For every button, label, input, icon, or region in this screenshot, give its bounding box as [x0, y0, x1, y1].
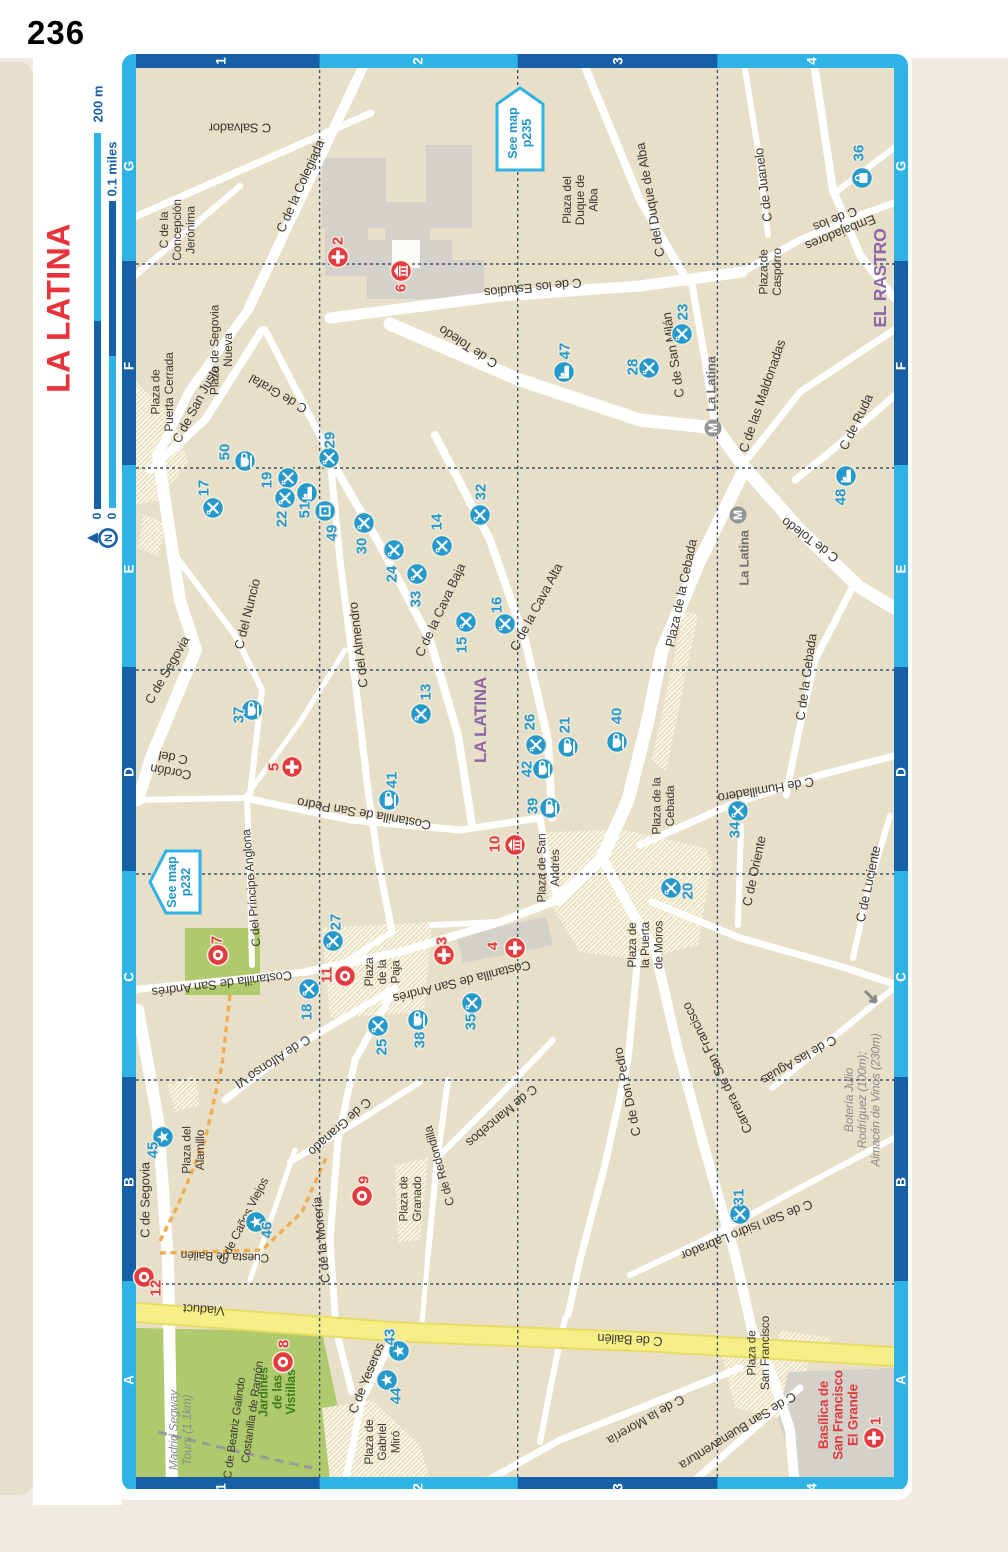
svg-text:45: 45 [145, 1142, 162, 1159]
svg-text:14: 14 [429, 513, 446, 530]
svg-text:Plaza dela Puertade Moros: Plaza dela Puertade Moros [625, 921, 665, 970]
svg-text:29: 29 [322, 432, 339, 449]
svg-text:27: 27 [328, 914, 345, 931]
svg-text:11: 11 [319, 967, 336, 983]
svg-text:2: 2 [330, 237, 347, 245]
svg-text:32: 32 [473, 484, 490, 501]
svg-text:34: 34 [727, 821, 744, 838]
svg-text:42: 42 [519, 761, 536, 778]
svg-text:28: 28 [625, 359, 642, 376]
svg-text:6: 6 [393, 284, 410, 292]
svg-text:37: 37 [231, 707, 248, 724]
svg-text:13: 13 [418, 684, 435, 701]
svg-text:C de Segovia: C de Segovia [138, 1161, 153, 1238]
svg-text:20: 20 [680, 883, 697, 900]
svg-text:M: M [731, 510, 745, 520]
svg-text:43: 43 [382, 1329, 399, 1346]
svg-text:40: 40 [609, 708, 626, 725]
svg-text:Plaza delAlamillo: Plaza delAlamillo [180, 1126, 207, 1174]
svg-text:46: 46 [259, 1222, 276, 1239]
svg-text:16: 16 [489, 597, 506, 614]
svg-text:33: 33 [408, 591, 425, 608]
svg-text:17: 17 [196, 480, 213, 497]
svg-text:Plaza de laCebada: Plaza de laCebada [650, 777, 677, 835]
svg-text:Plaza deCasporro: Plaza deCasporro [757, 248, 784, 296]
svg-text:10: 10 [487, 836, 504, 853]
svg-text:24: 24 [384, 565, 401, 582]
svg-text:Plazade laPaja: Plazade laPaja [362, 957, 402, 987]
svg-text:4: 4 [485, 941, 502, 950]
svg-text:51: 51 [297, 502, 314, 519]
svg-text:23: 23 [675, 304, 692, 321]
svg-text:30: 30 [354, 538, 371, 555]
svg-text:47: 47 [557, 343, 574, 360]
svg-text:LA LATINA: LA LATINA [471, 677, 490, 763]
svg-text:31: 31 [731, 1189, 748, 1206]
svg-text:48: 48 [833, 489, 850, 506]
svg-text:5: 5 [266, 763, 283, 771]
svg-text:49: 49 [324, 525, 341, 542]
svg-text:Plaza deGranado: Plaza deGranado [397, 1176, 424, 1222]
svg-text:N: N [103, 534, 115, 542]
svg-text:EL RASTRO: EL RASTRO [870, 229, 890, 328]
svg-text:50: 50 [217, 444, 234, 461]
svg-text:M: M [706, 423, 720, 433]
svg-text:18: 18 [299, 1004, 316, 1021]
svg-text:3: 3 [434, 937, 451, 945]
svg-text:15: 15 [454, 637, 471, 654]
svg-text:9: 9 [356, 1176, 373, 1184]
svg-text:35: 35 [463, 1014, 480, 1031]
svg-text:25: 25 [374, 1039, 391, 1056]
svg-text:21: 21 [557, 717, 574, 734]
svg-text:12: 12 [148, 1280, 165, 1297]
svg-text:22: 22 [274, 511, 291, 528]
svg-text:38: 38 [412, 1032, 429, 1049]
svg-text:C Salvador: C Salvador [208, 121, 271, 136]
svg-text:19: 19 [259, 472, 276, 489]
svg-text:44: 44 [388, 1387, 405, 1404]
svg-text:Madrid SegwayTours (1.1km): Madrid SegwayTours (1.1km) [167, 1389, 194, 1470]
svg-text:Viaduct: Viaduct [182, 1301, 225, 1319]
svg-text:La Latina: La Latina [737, 529, 752, 585]
svg-text:39: 39 [525, 798, 542, 815]
svg-text:7: 7 [209, 936, 226, 944]
svg-text:26: 26 [522, 714, 539, 731]
svg-text:La Latina: La Latina [704, 355, 719, 411]
svg-text:1: 1 [868, 1417, 885, 1425]
svg-text:8: 8 [276, 1340, 293, 1348]
svg-text:36: 36 [851, 145, 868, 162]
svg-text:41: 41 [384, 772, 401, 789]
